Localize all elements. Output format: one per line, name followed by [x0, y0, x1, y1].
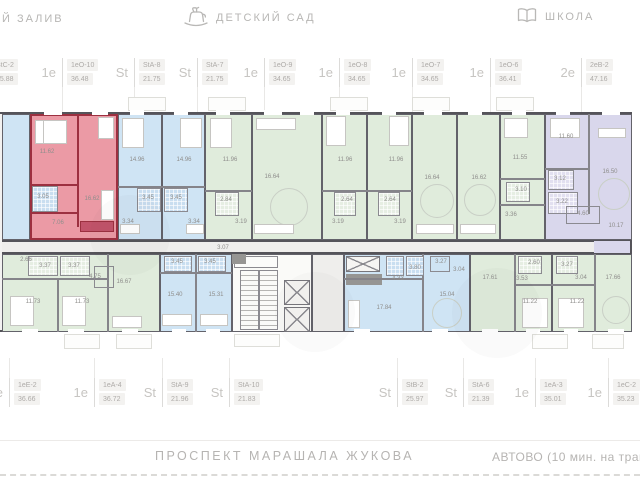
room-area-label: 11.73 — [75, 299, 90, 305]
room-area-label: 16.64 — [264, 174, 279, 180]
label-leader-line — [397, 358, 398, 378]
room-area-label: 3.37 — [39, 263, 51, 269]
floorplan-screen: Й ЗАЛИВ ДЕТСКИЙ САД ШКОЛА S — [0, 0, 640, 480]
room-area-label: 14.96 — [129, 157, 144, 163]
room-area-label: 15.31 — [208, 292, 223, 298]
room-area-label: 16.64 — [424, 175, 439, 181]
room-area-label: 3.19 — [394, 219, 406, 225]
label-leader-line — [94, 358, 95, 378]
label-divider — [463, 378, 464, 407]
road-edge-line — [0, 440, 640, 441]
unit-code-badge: StB-2 — [402, 379, 428, 391]
room-area-label: 4.33 — [392, 276, 404, 282]
label-divider — [397, 378, 398, 407]
unit-area-badge: 21.39 — [468, 393, 494, 405]
unit-code-badge: 1еС-2 — [613, 379, 640, 391]
room-area-label: 11.96 — [223, 157, 238, 163]
room-area-label: 11.96 — [338, 157, 353, 163]
unit-code-badge: 1еЕ-2 — [14, 379, 41, 391]
room-area-label: 10.17 — [608, 223, 623, 229]
room-area-label: 11.60 — [559, 134, 574, 140]
room-area-label: 16.50 — [602, 169, 617, 175]
room-area-label: 3.36 — [505, 212, 517, 218]
unit-area-badge: 35.01 — [540, 393, 566, 405]
room-area-label: 3.53 — [516, 276, 528, 282]
unit-area-badge: 21.96 — [167, 393, 193, 405]
unit-type: 1е — [515, 385, 529, 400]
unit-type: 1е — [74, 385, 88, 400]
label-leader-line — [229, 358, 230, 378]
road-center-dashed-line — [0, 474, 640, 476]
label-leader-line — [535, 358, 536, 378]
floor-plan: 11.62 16.62 3.05 7.06 14.96 3.45 3.34 14… — [0, 0, 640, 480]
room-area-label: 3.05 — [37, 194, 49, 200]
room-area-label: 2.60 — [528, 260, 540, 266]
label-divider — [608, 378, 609, 407]
unit-type: St — [144, 385, 156, 400]
room-area-label: 11.62 — [40, 149, 55, 155]
room-area-label: 3.27 — [435, 259, 447, 265]
room-area-label: 3.04 — [575, 275, 587, 281]
unit-type: St — [211, 385, 223, 400]
room-area-label: 15.04 — [439, 292, 454, 298]
unit-type: 1е — [588, 385, 602, 400]
unit-area-badge: 21.83 — [234, 393, 260, 405]
room-area-label: 2.64 — [341, 197, 353, 203]
room-area-label: 4.60 — [577, 211, 589, 217]
room-area-label: 2.64 — [384, 197, 396, 203]
unit-code-badge: StA-9 — [167, 379, 193, 391]
room-area-label: 11.73 — [26, 299, 41, 305]
room-area-label: 17.84 — [376, 305, 391, 311]
room-area-label: 11.22 — [570, 299, 585, 305]
room-area-label: 3.10 — [515, 187, 527, 193]
label-divider — [94, 378, 95, 407]
unit-area-badge: 25.97 — [402, 393, 428, 405]
room-area-label: 4.75 — [89, 274, 101, 280]
room-area-label: 2.84 — [220, 197, 232, 203]
room-area-label: 3.45 — [204, 259, 216, 265]
room-area-label: 3.04 — [453, 267, 465, 273]
metro-distance-label: АВТОВО (10 мин. на трансп — [492, 450, 640, 464]
room-area-label: 3.19 — [235, 219, 247, 225]
label-divider — [535, 378, 536, 407]
unit-type: St — [445, 385, 457, 400]
room-area-label: 3.19 — [332, 219, 344, 225]
unit-area-badge: 36.72 — [99, 393, 125, 405]
room-area-label: 3.45 — [142, 195, 154, 201]
unit-type: St — [379, 385, 391, 400]
label-divider — [162, 378, 163, 407]
room-area-label: 3.34 — [122, 219, 134, 225]
room-area-label: 11.55 — [513, 155, 528, 161]
room-area-label: 3.07 — [217, 245, 229, 251]
label-leader-line — [9, 358, 10, 378]
label-leader-line — [463, 358, 464, 378]
room-area-label: 15.40 — [167, 292, 182, 298]
room-area-label: 17.66 — [605, 275, 620, 281]
room-area-label: 11.22 — [523, 299, 538, 305]
unit-code-badge: 1еА-3 — [540, 379, 567, 391]
label-divider — [9, 378, 10, 407]
room-area-label: 11.96 — [389, 157, 404, 163]
label-divider — [229, 378, 230, 407]
room-area-label: 3.22 — [556, 199, 568, 205]
room-area-label: 16.67 — [116, 279, 131, 285]
room-area-label: 3.12 — [554, 176, 566, 182]
unit-area-badge: 35.23 — [613, 393, 639, 405]
unit-code-badge: StA-6 — [468, 379, 494, 391]
room-area-label: 3.37 — [68, 263, 80, 269]
room-area-label: 14.96 — [176, 157, 191, 163]
unit-type: 1е — [0, 385, 3, 400]
room-area-label: 16.62 — [471, 175, 486, 181]
room-area-label: 3.80 — [409, 265, 421, 271]
room-area-label: 3.45 — [171, 259, 183, 265]
unit-code-badge: 1еА-4 — [99, 379, 126, 391]
room-area-label: 7.06 — [52, 220, 64, 226]
room-area-label: 3.45 — [170, 195, 182, 201]
street-name: ПРОСПЕКТ МАРАШАЛА ЖУКОВА — [155, 449, 414, 463]
label-leader-line — [608, 358, 609, 378]
room-area-label: 3.27 — [561, 262, 573, 268]
room-area-label: 17.61 — [482, 275, 497, 281]
unit-area-badge: 36.66 — [14, 393, 40, 405]
room-area-label: 16.62 — [84, 196, 99, 202]
room-area-label: 3.34 — [188, 219, 200, 225]
room-area-labels: 11.62 16.62 3.05 7.06 14.96 3.45 3.34 14… — [0, 0, 640, 480]
unit-code-badge: StA-10 — [234, 379, 263, 391]
room-area-label: 2.66 — [20, 257, 32, 263]
label-leader-line — [162, 358, 163, 378]
